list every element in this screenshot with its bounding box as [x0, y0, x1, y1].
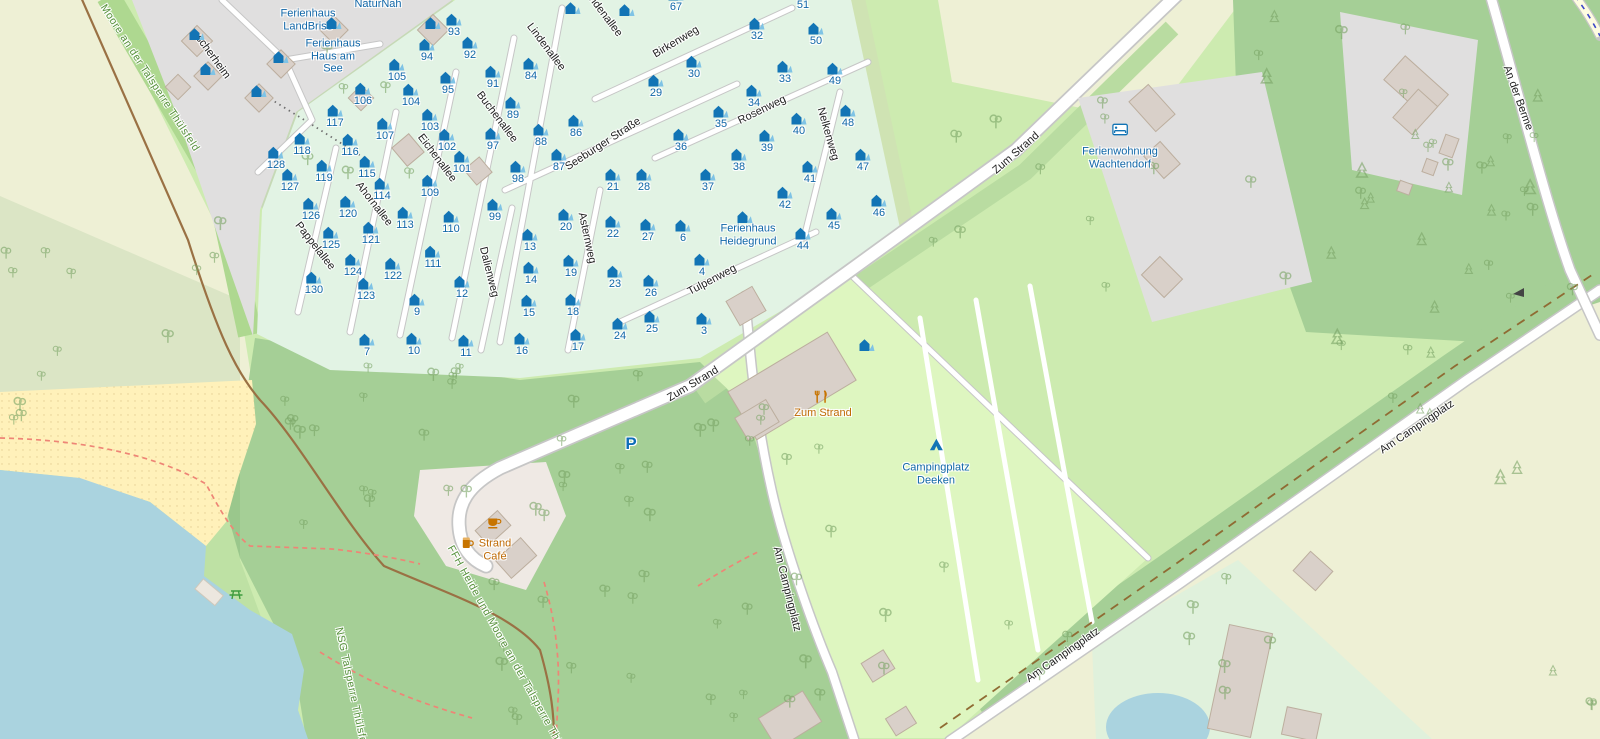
chalet-marker: 30	[686, 55, 702, 80]
chalet-number: 36	[675, 141, 687, 153]
chalet-number: 101	[453, 163, 471, 175]
chalet-number: 39	[761, 142, 773, 154]
chalet-number: 14	[525, 274, 537, 286]
poi-text: Campingplatz	[902, 462, 969, 475]
poi-text: Ferienhaus	[305, 37, 360, 50]
chalet-number: 106	[354, 95, 372, 107]
chalet-number: 48	[842, 117, 854, 129]
chalet-marker: 121	[362, 221, 380, 246]
street-label: Am Campingplatz	[1024, 625, 1102, 685]
chalet-marker: 106	[354, 82, 372, 107]
chalet-marker: 84	[523, 57, 539, 82]
chalet-number: 87	[553, 161, 565, 173]
chalet-icon	[200, 63, 216, 76]
chalet-marker: 46	[871, 194, 887, 219]
chalet-number: 4	[699, 266, 705, 278]
chalet-marker: 113	[396, 206, 414, 231]
chalet-marker: 99	[487, 198, 503, 223]
chalet-marker: 95	[440, 71, 456, 96]
chalet-number: 25	[646, 323, 658, 335]
street-label: An der Berme	[1501, 64, 1535, 132]
chalet-marker: 98	[510, 160, 526, 185]
chalet-marker: 9	[409, 293, 425, 318]
chalet-number: 23	[609, 278, 621, 290]
picnic-icon	[229, 588, 244, 600]
chalet-number: 118	[293, 145, 311, 157]
poi-text: Deeken	[902, 474, 969, 487]
poi-label-campingplatz-deeken: CampingplatzDeeken	[902, 462, 969, 487]
chalet-marker: 12	[454, 275, 470, 300]
chalet-number: 45	[828, 220, 840, 232]
chalet-marker: 122	[384, 257, 402, 282]
chalet-marker: 15	[521, 294, 537, 319]
chalet-marker: 27	[640, 218, 656, 243]
chalet-number: 103	[421, 121, 439, 133]
chalet-number: 41	[804, 173, 816, 185]
chalet-number: 121	[362, 234, 380, 246]
chalet-marker: 22	[605, 215, 621, 240]
tent-icon	[928, 438, 943, 451]
chalet-number: 99	[489, 211, 501, 223]
chalet-number: 19	[565, 267, 577, 279]
chalet-number: 47	[857, 161, 869, 173]
chalet-number: 116	[341, 146, 359, 158]
chalet-marker: 97	[485, 127, 501, 152]
chalet-marker: 4	[694, 253, 710, 278]
chalet-number: 126	[302, 210, 320, 222]
poi-text: Strand	[479, 538, 511, 551]
chalet-number: 28	[638, 181, 650, 193]
chalet-marker: 35	[713, 105, 729, 130]
chalet-number: 15	[523, 307, 535, 319]
chalet-number: 22	[607, 228, 619, 240]
poi-label-ferienhaus-heidegrund: FerienhausHeidegrund	[720, 223, 777, 248]
chalet-marker: 110	[442, 210, 460, 235]
chalet-number: 11	[460, 347, 471, 359]
chalet-icon	[189, 28, 205, 41]
chalet-marker: 18	[565, 293, 581, 318]
chalet-marker: 119	[315, 159, 333, 184]
chalet-number: 109	[421, 187, 439, 199]
chalet-number: 84	[525, 70, 537, 82]
chalet-marker: 34	[746, 84, 762, 109]
chalet-number: 20	[560, 221, 572, 233]
chalet-marker: 127	[281, 168, 299, 193]
chalet-number: 29	[650, 87, 662, 99]
chalet-number: 111	[425, 258, 442, 270]
chalet-number: 105	[388, 71, 406, 83]
poi-text: See	[305, 62, 360, 75]
chalet-marker: 16	[514, 332, 530, 357]
chalet-marker: 109	[421, 174, 439, 199]
chalet-number: 67	[670, 1, 682, 13]
chalet-marker: 50	[808, 22, 824, 47]
labels-layer: scherheimLindenalleeLindenalleeBuchenall…	[0, 0, 1600, 739]
street-label: Moore an der Talsperre Thülsfeld	[98, 2, 202, 154]
chalet-marker: 14	[523, 261, 539, 286]
chalet-marker: 94	[419, 38, 435, 63]
chalet-marker: 13	[522, 228, 538, 253]
chalet-number: 50	[810, 35, 822, 47]
chalet-number: 18	[567, 306, 579, 318]
chalet-number: 120	[339, 208, 357, 220]
chalet-marker: 104	[402, 83, 420, 108]
chalet-icon	[619, 4, 635, 17]
chalet-number: 32	[751, 30, 763, 42]
chalet-number: 6	[680, 232, 686, 244]
chalet-number: 117	[326, 117, 344, 129]
chalet-marker: 32	[749, 17, 765, 42]
chalet-marker: 25	[644, 310, 660, 335]
chalet-marker: 26	[643, 274, 659, 299]
poi-label-zum-strand-restaurant: Zum Strand	[794, 407, 851, 420]
chalet-marker: 130	[305, 271, 323, 296]
chalet-marker: 11	[458, 334, 474, 359]
chalet-marker: 103	[421, 108, 439, 133]
chalet-marker: 87	[551, 148, 567, 173]
chalet-number: 44	[797, 240, 809, 252]
chalet-number: 26	[645, 287, 657, 299]
chalet-number: 13	[524, 241, 536, 253]
chalet-number: 27	[642, 231, 654, 243]
chalet-marker: 29	[648, 74, 664, 99]
chalet-number: 89	[507, 109, 519, 121]
chalet-marker: 117	[326, 104, 344, 129]
chalet-number: 35	[715, 118, 727, 130]
chalet-marker: 20	[558, 208, 574, 233]
chalet-marker: 51	[795, 0, 811, 11]
chalet-number: 34	[748, 97, 760, 109]
map-viewport[interactable]: scherheimLindenalleeLindenalleeBuchenall…	[0, 0, 1600, 739]
chalet-number: 12	[456, 288, 468, 300]
chalet-marker: 39	[759, 129, 775, 154]
chalet-number: 17	[572, 341, 584, 353]
chalet-marker: 116	[341, 133, 359, 158]
poi-text: Café	[479, 550, 511, 563]
chalet-number: 10	[408, 345, 420, 357]
chalet-marker: 126	[302, 197, 320, 222]
chalet-number: 30	[688, 68, 700, 80]
chalet-marker: 36	[673, 128, 689, 153]
poi-text: Ferienwohnung	[1082, 146, 1158, 159]
chalet-number: 16	[516, 345, 528, 357]
chalet-number: 127	[281, 181, 299, 193]
street-label: Asternweg	[576, 211, 599, 264]
chalet-number: 24	[614, 330, 626, 342]
chalet-marker: 42	[777, 186, 793, 211]
chalet-marker: 28	[636, 168, 652, 193]
chalet-icon	[565, 2, 581, 15]
chalet-icon	[737, 211, 753, 224]
chalet-marker: 93	[446, 13, 462, 38]
chalet-number: 37	[702, 181, 714, 193]
chalet-icon	[859, 339, 875, 352]
chalet-number: 21	[607, 181, 619, 193]
chalet-marker: 114	[373, 177, 391, 202]
chalet-marker: 123	[357, 277, 375, 302]
chalet-number: 46	[873, 207, 885, 219]
poi-text: Haus am	[305, 50, 360, 63]
chalet-number: 42	[779, 199, 791, 211]
poi-text: P	[625, 438, 636, 451]
chalet-marker: 47	[855, 148, 871, 173]
poi-text: Zum Strand	[794, 407, 851, 420]
chalet-number: 114	[373, 190, 391, 202]
chalet-number: 92	[464, 49, 476, 61]
poi-text: Ferienhaus	[720, 223, 777, 236]
chalet-marker: 21	[605, 168, 621, 193]
bed-icon	[1112, 124, 1128, 136]
chalet-marker: 88	[533, 123, 549, 148]
chalet-marker: 24	[612, 317, 628, 342]
chalet-marker: 124	[344, 253, 362, 278]
street-label: NSG Talsperre Thülsfeld	[333, 626, 371, 739]
chalet-number: 91	[487, 78, 499, 90]
chalet-marker: 91	[485, 65, 501, 90]
chalet-number: 88	[535, 136, 547, 148]
chalet-marker: 49	[827, 62, 843, 87]
poi-label-naturnah: NaturNah	[354, 0, 401, 10]
chalet-marker: 120	[339, 195, 357, 220]
chalet-number: 110	[442, 223, 460, 235]
chalet-marker: 67	[668, 0, 684, 13]
chalet-number: 49	[829, 75, 841, 87]
chalet-marker: 105	[388, 58, 406, 83]
cafe-icon	[487, 516, 502, 529]
chalet-number: 130	[305, 284, 323, 296]
street-label: FFH Heide und Moore an der Talsperre Thü…	[445, 543, 579, 739]
chalet-marker: 40	[791, 112, 807, 137]
chalet-icon	[425, 17, 441, 30]
street-label: Nelkenweg	[815, 106, 842, 162]
chalet-marker: 37	[700, 168, 716, 193]
chalet-number: 86	[570, 127, 582, 139]
chalet-number: 40	[793, 125, 805, 137]
chalet-marker: 33	[777, 60, 793, 85]
poi-text: NaturNah	[354, 0, 401, 10]
chalet-number: 33	[779, 73, 791, 85]
chalet-icon	[326, 17, 342, 30]
chalet-number: 97	[487, 140, 499, 152]
poi-label-ferienhaus-haus-am-see: FerienhausHaus amSee	[305, 37, 360, 75]
chalet-icon	[273, 51, 289, 64]
chalet-marker: 7	[359, 333, 375, 358]
chalet-marker: 19	[563, 254, 579, 279]
street-label: Zum Strand	[990, 130, 1041, 177]
chalet-number: 38	[733, 161, 745, 173]
chalet-number: 7	[364, 346, 370, 358]
restaurant-icon	[814, 390, 829, 404]
chalet-marker: 107	[376, 117, 394, 142]
chalet-marker: 125	[322, 226, 340, 251]
chalet-number: 95	[442, 84, 454, 96]
chalet-number: 94	[421, 51, 433, 63]
poi-text: Wachtendorf	[1082, 158, 1158, 171]
chalet-marker: 118	[293, 132, 311, 157]
chalet-number: 93	[448, 26, 460, 38]
chalet-marker: 86	[568, 114, 584, 139]
chalet-marker: 101	[453, 150, 471, 175]
street-label: Rosenweg	[736, 93, 788, 127]
chalet-icon	[251, 85, 267, 98]
chalet-number: 119	[315, 172, 333, 184]
chalet-number: 98	[512, 173, 524, 185]
chalet-number: 125	[322, 239, 340, 251]
chalet-marker: 111	[425, 245, 442, 270]
chalet-number: 51	[797, 0, 809, 11]
chalet-number: 122	[384, 270, 402, 282]
street-label: Am Campingplatz	[1378, 398, 1457, 457]
poi-label-parking: P	[625, 438, 636, 451]
poi-label-strand-cafe: StrandCafé	[479, 538, 511, 563]
poi-label-ferienwohnung-wachtendorf: FerienwohnungWachtendorf	[1082, 146, 1158, 171]
poi-text: Heidegrund	[720, 235, 777, 248]
chalet-marker: 44	[795, 227, 811, 252]
street-label: Zum Strand	[665, 364, 720, 404]
chalet-marker: 23	[607, 265, 623, 290]
chalet-marker: 45	[826, 207, 842, 232]
chalet-marker: 48	[840, 104, 856, 129]
chalet-number: 113	[396, 219, 414, 231]
chalet-marker: 3	[696, 312, 712, 337]
chalet-number: 123	[357, 290, 375, 302]
street-label: Dalienweg	[477, 246, 501, 299]
street-label: Am Campingplatz	[771, 545, 804, 632]
chalet-marker: 92	[462, 36, 478, 61]
chalet-marker: 41	[802, 160, 818, 185]
chalet-number: 9	[414, 306, 420, 318]
chalet-marker: 17	[570, 328, 586, 353]
chalet-number: 3	[701, 325, 707, 337]
chalet-number: 104	[402, 96, 420, 108]
chalet-number: 107	[376, 130, 394, 142]
chalet-marker: 10	[406, 332, 422, 357]
chalet-marker: 89	[505, 96, 521, 121]
beer-icon	[461, 536, 475, 549]
chalet-marker: 6	[675, 219, 691, 244]
chalet-marker: 38	[731, 148, 747, 173]
